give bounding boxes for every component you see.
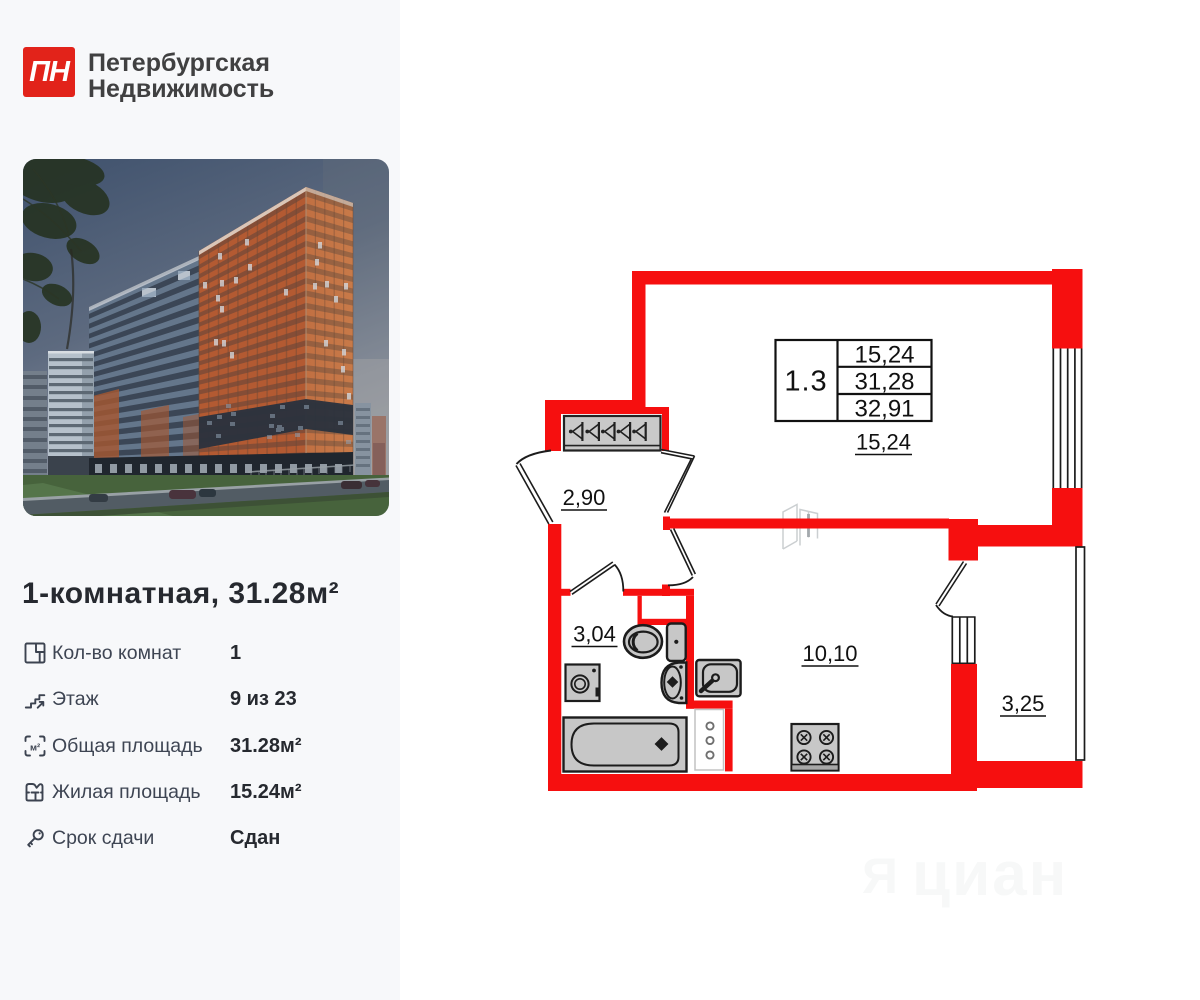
svg-text:Я: Я (862, 848, 898, 904)
svg-text:32,91: 32,91 (854, 396, 914, 423)
svg-text:3,04: 3,04 (573, 622, 616, 647)
svg-text:3,25: 3,25 (1002, 691, 1045, 716)
svg-text:15,24: 15,24 (854, 342, 914, 369)
svg-text:31,28: 31,28 (854, 369, 914, 396)
svg-text:1.3: 1.3 (784, 366, 827, 398)
svg-text:15,24: 15,24 (856, 430, 911, 455)
svg-text:10,10: 10,10 (802, 641, 857, 666)
svg-text:2,90: 2,90 (563, 485, 606, 510)
svg-text:циан: циан (912, 840, 1068, 909)
